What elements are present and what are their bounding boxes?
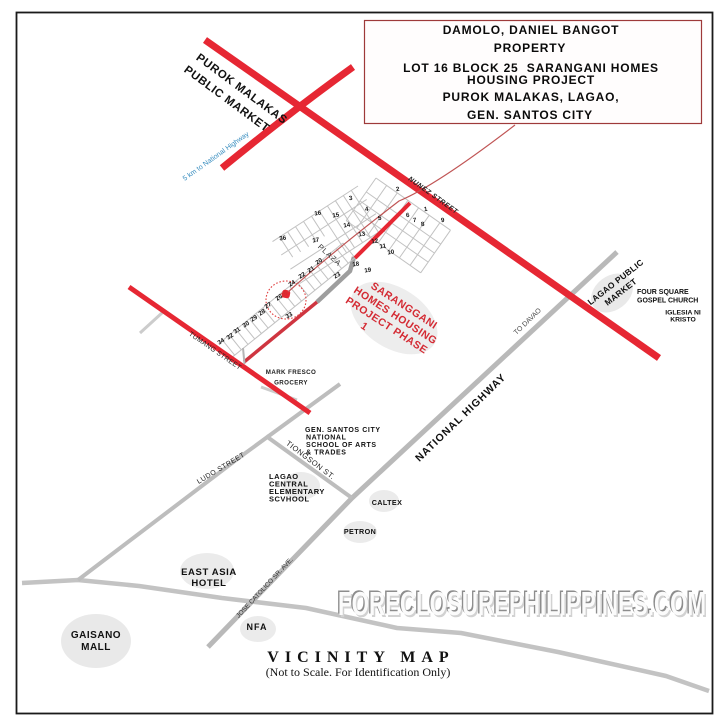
svg-text:HOUSING PROJECT: HOUSING PROJECT (467, 73, 595, 87)
svg-text:PETRON: PETRON (344, 527, 376, 536)
svg-text:PROPERTY: PROPERTY (494, 41, 566, 55)
svg-text:GEN. SANTOS CITY: GEN. SANTOS CITY (305, 427, 381, 434)
svg-text:VICINITY MAP: VICINITY MAP (267, 649, 454, 666)
svg-text:NFA: NFA (247, 622, 268, 632)
svg-text:FOUR SQUARE: FOUR SQUARE (637, 289, 689, 296)
svg-text:SCHOOL OF ARTS: SCHOOL OF ARTS (306, 442, 377, 449)
svg-text:GROCERY: GROCERY (274, 380, 308, 387)
svg-text:FORECLOSUREPHILIPPINES.COM: FORECLOSUREPHILIPPINES.COM (338, 585, 706, 622)
svg-text:MARK FRESCO: MARK FRESCO (266, 369, 316, 376)
svg-text:EAST ASIA: EAST ASIA (181, 567, 237, 578)
svg-text:GOSPEL CHURCH: GOSPEL CHURCH (637, 298, 698, 305)
svg-text:GAISANO: GAISANO (71, 630, 121, 641)
svg-text:GEN. SANTOS CITY: GEN. SANTOS CITY (467, 108, 593, 122)
svg-text:MALL: MALL (81, 642, 111, 653)
svg-text:SCVHOOL: SCVHOOL (269, 495, 310, 504)
svg-text:PUROK MALAKAS, LAGAO,: PUROK MALAKAS, LAGAO, (443, 90, 620, 104)
svg-text:DAMOLO, DANIEL BANGOT: DAMOLO, DANIEL BANGOT (443, 23, 620, 37)
svg-text:CALTEX: CALTEX (372, 498, 403, 507)
svg-text:HOTEL: HOTEL (191, 578, 226, 589)
svg-text:(Not to Scale. For Identificat: (Not to Scale. For Identification Only) (266, 665, 451, 679)
svg-text:NATIONAL: NATIONAL (306, 435, 347, 442)
svg-text:KRISTO: KRISTO (670, 317, 696, 324)
svg-text:IGLESIA NI: IGLESIA NI (665, 310, 701, 317)
